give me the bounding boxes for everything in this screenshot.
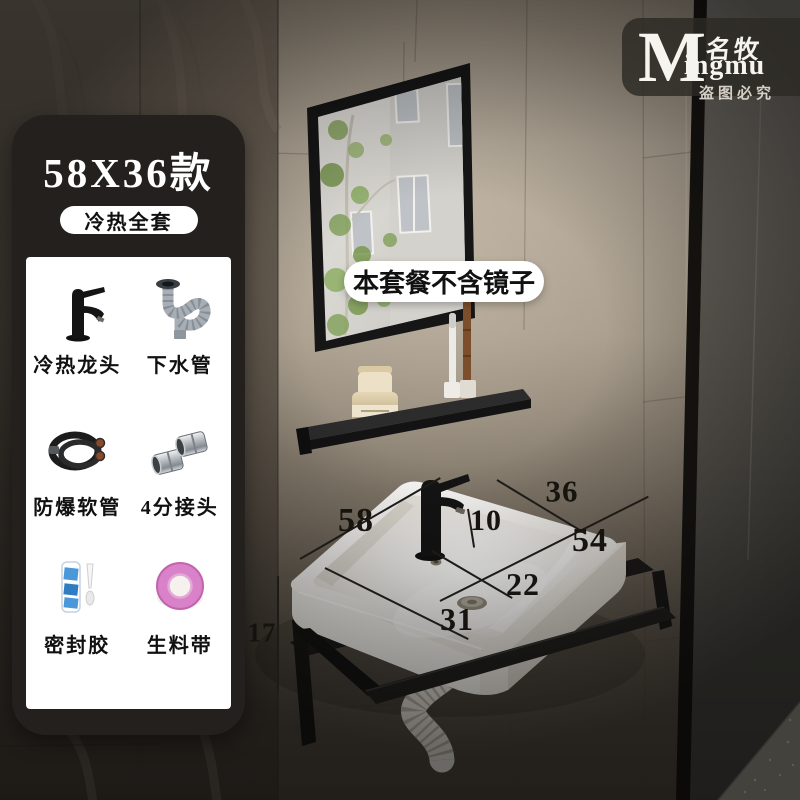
accessory-connector: 4分接头	[129, 415, 232, 520]
hose-icon	[43, 415, 111, 487]
dimension-value: 17	[248, 620, 277, 647]
no-mirror-note: 本套餐不含镜子	[344, 261, 544, 302]
dimension-value: 22	[506, 568, 540, 600]
accessory-sealant: 密封胶	[26, 553, 129, 658]
accessory-row: 冷热龙头 下水管	[26, 273, 231, 378]
model-title: 58X36款	[12, 151, 245, 196]
tape-icon	[146, 553, 214, 625]
connector-icon	[146, 415, 214, 487]
accessory-hose: 防爆软管	[26, 415, 129, 520]
accessory-label: 4分接头	[141, 491, 219, 520]
accessory-row: 密封胶 生料带	[26, 553, 231, 658]
brand-anti-piracy-notice: 盗图必究	[699, 82, 775, 103]
faucet-icon	[43, 273, 111, 345]
dimension-value: 54	[572, 524, 608, 558]
no-mirror-note-text: 本套餐不含镜子	[353, 263, 535, 300]
set-type-badge: 冷热全套	[60, 206, 198, 234]
sealant-icon	[43, 553, 111, 625]
accessory-label: 防爆软管	[33, 491, 121, 520]
accessory-label: 冷热龙头	[33, 349, 121, 378]
brand-latin-name: ingmu	[684, 50, 765, 82]
accessory-tape: 生料带	[129, 553, 232, 658]
accessory-row: 防爆软管	[26, 415, 231, 520]
accessory-label: 生料带	[147, 629, 213, 658]
accessory-drain-pipe: 下水管	[129, 273, 232, 378]
dimension-value: 10	[470, 506, 502, 536]
drain-pipe-icon	[146, 273, 214, 345]
accessory-label: 密封胶	[44, 629, 110, 658]
accessories-list: 冷热龙头 下水管	[26, 257, 231, 709]
accessory-label: 下水管	[147, 349, 213, 378]
dimension-value: 36	[546, 476, 579, 507]
accessories-panel: 58X36款 冷热全套 冷热龙头	[12, 115, 245, 735]
dimension-value: 31	[440, 603, 474, 635]
dimension-line-17	[277, 576, 279, 691]
accessory-faucet: 冷热龙头	[26, 273, 129, 378]
product-image: 58 36 10 54 22 31 17 本套餐不含镜子 M 名牧 ingmu …	[0, 0, 800, 800]
dimension-value: 58	[338, 504, 374, 538]
